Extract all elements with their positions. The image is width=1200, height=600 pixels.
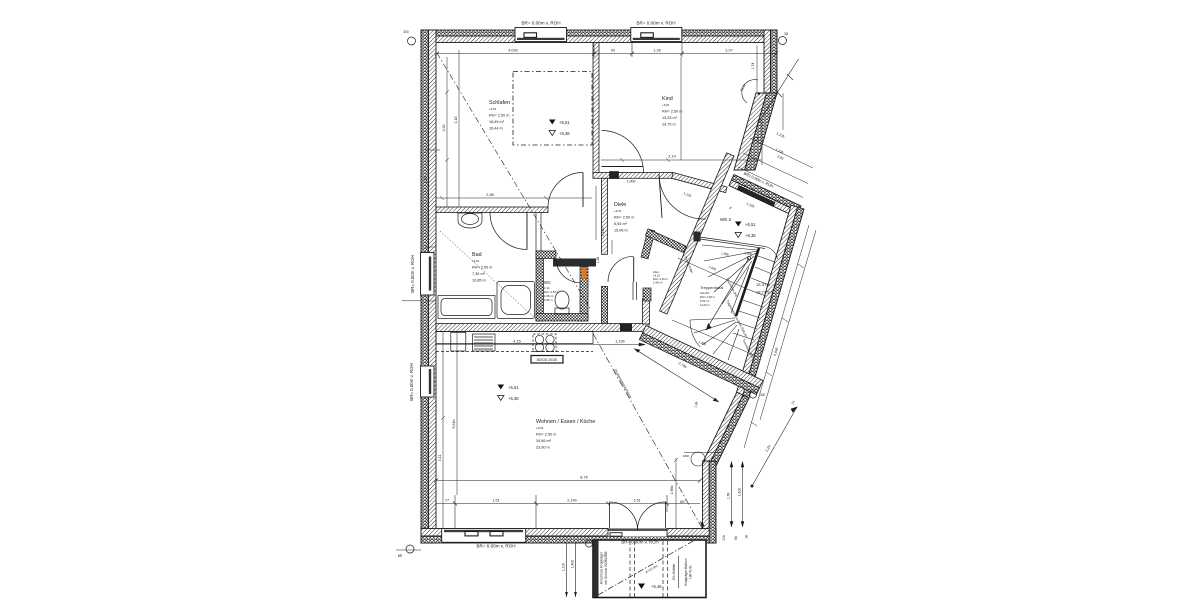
svg-text:14,75 m: 14,75 m <box>662 123 676 127</box>
svg-text:1,98 m²: 1,98 m² <box>653 281 663 285</box>
svg-text:WE 2: WE 2 <box>720 217 732 222</box>
svg-text:10,85 m: 10,85 m <box>472 279 486 283</box>
svg-text:+6,51: +6,51 <box>472 259 480 263</box>
svg-text:BR: BR <box>398 554 403 558</box>
svg-text:1,40b: 1,40b <box>571 560 575 569</box>
svg-text:2,86: 2,86 <box>486 193 493 197</box>
svg-text:RH= 2,50 m: RH= 2,50 m <box>662 110 682 114</box>
svg-text:2% Gefälle: 2% Gefälle <box>672 564 676 581</box>
svg-text:4,15: 4,15 <box>513 340 520 344</box>
svg-text:UK=5,40: UK=5,40 <box>689 565 693 578</box>
svg-text:Treppenhaus: Treppenhaus <box>700 285 723 290</box>
svg-text:300: 300 <box>760 393 766 397</box>
svg-text:13,33 m²: 13,33 m² <box>662 116 678 120</box>
svg-text:Wohnen / Essen / Küche: Wohnen / Essen / Küche <box>536 419 595 425</box>
svg-text:15-STG: 15-STG <box>756 282 770 287</box>
svg-text:1,51: 1,51 <box>492 499 499 503</box>
svg-text:1,60b: 1,60b <box>738 488 742 497</box>
svg-text:16,44 m: 16,44 m <box>489 127 503 131</box>
svg-text:2,14b: 2,14b <box>601 228 605 237</box>
svg-text:RH= 2,50 m: RH= 2,50 m <box>536 433 556 437</box>
svg-text:2,14: 2,14 <box>668 155 675 159</box>
svg-text:+5,51: +5,51 <box>559 120 570 125</box>
svg-text:+5,36: +5,36 <box>559 131 570 136</box>
svg-text:RH= 2,50 m: RH= 2,50 m <box>489 114 509 118</box>
svg-text:15,96 m: 15,96 m <box>614 229 628 233</box>
svg-text:+6,51: +6,51 <box>662 103 670 107</box>
svg-text:16,69 m²: 16,69 m² <box>489 120 505 124</box>
svg-text:1,90b: 1,90b <box>627 180 636 184</box>
svg-text:77: 77 <box>445 499 449 503</box>
svg-text:7,35 m²: 7,35 m² <box>472 272 486 276</box>
svg-text:1,19b: 1,19b <box>615 340 625 344</box>
svg-text:+5,46: +5,46 <box>651 584 662 589</box>
svg-text:+5,51: +5,51 <box>508 385 519 390</box>
svg-text:1,10b: 1,10b <box>562 563 566 572</box>
svg-text:Diele: Diele <box>614 202 626 208</box>
svg-text:18,7/29,5: 18,7/29,5 <box>756 290 773 295</box>
svg-text:+5,36: +5,36 <box>508 396 519 401</box>
svg-text:2,14b: 2,14b <box>567 499 577 503</box>
svg-text:5,54 m²: 5,54 m² <box>614 222 628 226</box>
svg-text:Bad: Bad <box>472 252 482 258</box>
svg-text:1,74: 1,74 <box>751 63 755 70</box>
svg-text:180b: 180b <box>683 454 690 458</box>
svg-text:mit Schöck ISOKORB: mit Schöck ISOKORB <box>604 551 608 585</box>
svg-text:4,02b: 4,02b <box>508 49 518 53</box>
svg-text:1,96b: 1,96b <box>670 486 674 495</box>
svg-text:5,61b: 5,61b <box>452 420 456 429</box>
svg-text:RH= 2,50 m: RH= 2,50 m <box>472 266 492 270</box>
svg-text:90: 90 <box>611 49 615 53</box>
svg-text:1,92: 1,92 <box>424 177 428 184</box>
svg-text:BR= 0.00m v. ROH: BR= 0.00m v. ROH <box>636 21 675 26</box>
svg-text:1,78: 1,78 <box>727 493 731 500</box>
svg-text:34,66 m²: 34,66 m² <box>536 439 552 443</box>
svg-text:10b: 10b <box>722 535 726 541</box>
svg-text:1,51: 1,51 <box>633 499 640 503</box>
svg-text:5,96 m: 5,96 m <box>544 298 553 302</box>
svg-text:+6,38: +6,38 <box>745 233 756 238</box>
svg-text:23,90 m: 23,90 m <box>536 446 550 450</box>
svg-text:2,07: 2,07 <box>725 49 732 53</box>
svg-text:80/OD 20/30: 80/OD 20/30 <box>537 358 557 362</box>
svg-text:1,26: 1,26 <box>653 49 660 53</box>
svg-text:60°: 60° <box>680 500 686 504</box>
svg-text:Anschluss Kragträger: Anschluss Kragträger <box>600 551 604 584</box>
svg-text:RH= 2,50 m: RH= 2,50 m <box>614 216 634 220</box>
svg-text:BR= 0.00m v. ROH: BR= 0.00m v. ROH <box>521 21 560 26</box>
svg-text:300: 300 <box>403 30 409 34</box>
svg-text:+6,51: +6,51 <box>536 426 544 430</box>
svg-text:BR= 0.00m v. ROH: BR= 0.00m v. ROH <box>410 255 415 292</box>
svg-text:3,92: 3,92 <box>442 125 446 132</box>
svg-text:11,06 m: 11,06 m <box>700 303 711 307</box>
svg-text:18: 18 <box>745 535 749 539</box>
svg-text:WC: WC <box>544 280 551 285</box>
svg-text:38: 38 <box>784 32 788 36</box>
svg-text:1,38: 1,38 <box>596 257 600 264</box>
svg-text:9b: 9b <box>734 536 738 540</box>
svg-text:+6,51: +6,51 <box>489 107 497 111</box>
svg-text:+6,51: +6,51 <box>614 209 622 213</box>
svg-text:BR= 0.00m v. ROH: BR= 0.00m v. ROH <box>621 540 658 545</box>
svg-text:Kragträger Balkon: Kragträger Balkon <box>684 558 688 585</box>
svg-text:BR= 0.00m v. ROH: BR= 0.00m v. ROH <box>409 363 414 400</box>
svg-text:Kind: Kind <box>662 96 673 102</box>
svg-text:Schlafen: Schlafen <box>489 100 510 106</box>
svg-text:1,18: 1,18 <box>454 117 458 124</box>
svg-text:3,11: 3,11 <box>438 455 442 462</box>
svg-text:8,76: 8,76 <box>580 476 587 480</box>
svg-text:BR= 0.00m v. ROH: BR= 0.00m v. ROH <box>476 544 515 549</box>
svg-text:+6,51: +6,51 <box>745 222 756 227</box>
